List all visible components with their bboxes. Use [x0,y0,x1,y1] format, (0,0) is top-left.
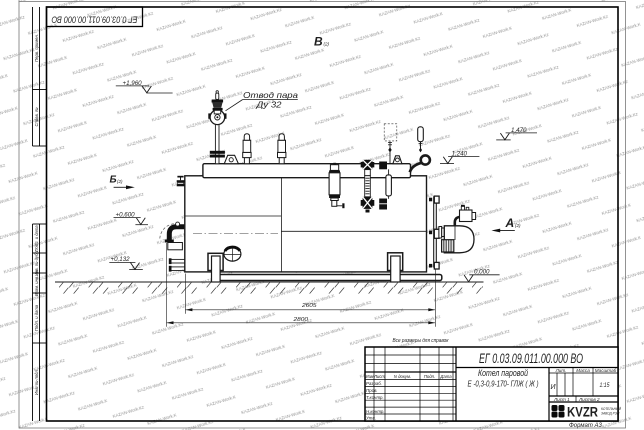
svg-text:Утв.: Утв. [366,416,376,421]
svg-text:ЗАВОД РЭП: ЗАВОД РЭП [601,412,620,416]
svg-text:В: В [314,35,323,49]
svg-text:КОТЕЛЬНЫЙ: КОТЕЛЬНЫЙ [601,407,622,411]
svg-text:Отвод пара: Отвод пара [243,90,298,100]
svg-text:Котел паровой: Котел паровой [478,368,528,378]
svg-text:Взам. инв. №: Взам. инв. № [34,270,39,296]
svg-text:ЕГ 0.03.09.011.00.000 ВО: ЕГ 0.03.09.011.00.000 ВО [52,15,138,25]
svg-text:ЕГ 0.03.09.011.00.000 ВО: ЕГ 0.03.09.011.00.000 ВО [479,351,583,366]
svg-text:1:15: 1:15 [600,383,611,389]
svg-text:Лист 1: Лист 1 [553,397,570,402]
svg-text:Масштаб: Масштаб [595,368,617,373]
svg-text:Изм: Изм [366,374,374,379]
svg-text:Инв. № подл.: Инв. № подл. [34,369,39,395]
svg-text:Дата: Дата [439,374,452,379]
svg-text:2605: 2605 [301,303,317,309]
svg-text:2800: 2800 [292,317,308,323]
svg-text:(2): (2) [117,179,123,184]
svg-text:N докум.: N докум. [394,374,411,379]
svg-text:Формат А3: Формат А3 [569,423,602,429]
svg-text:Все размеры для справок: Все размеры для справок [393,338,449,344]
svg-text:Н.контр.: Н.контр. [366,409,385,414]
svg-text:Подп. и дата: Подп. и дата [34,304,39,331]
svg-text:Подп. и дата: Подп. и дата [34,225,39,252]
svg-text:Ду 32: Ду 32 [255,100,282,110]
svg-text:KVZR: KVZR [567,405,598,420]
svg-text:А: А [505,216,515,230]
svg-text:Лист: Лист [373,374,385,379]
svg-text:Разраб.: Разраб. [366,381,382,386]
svg-text:(2): (2) [515,223,521,228]
svg-text:Справ. №: Справ. № [34,107,39,126]
svg-text:Лит.: Лит. [555,368,567,373]
svg-text:Пров.: Пров. [366,388,378,393]
svg-text:Листов 2: Листов 2 [578,397,600,402]
svg-text:Масса: Масса [576,368,590,373]
svg-text:+0,132: +0,132 [111,256,131,263]
svg-text:Т.контр.: Т.контр. [366,395,384,400]
svg-text:Перв. примен.: Перв. примен. [34,34,39,62]
svg-text:Подп.: Подп. [424,374,435,379]
svg-text:Е -0,3-0,9-170- ГЛЖ ( Ж ): Е -0,3-0,9-170- ГЛЖ ( Ж ) [468,380,539,389]
svg-text:Б: Б [110,175,117,186]
svg-text:(2): (2) [324,42,330,47]
